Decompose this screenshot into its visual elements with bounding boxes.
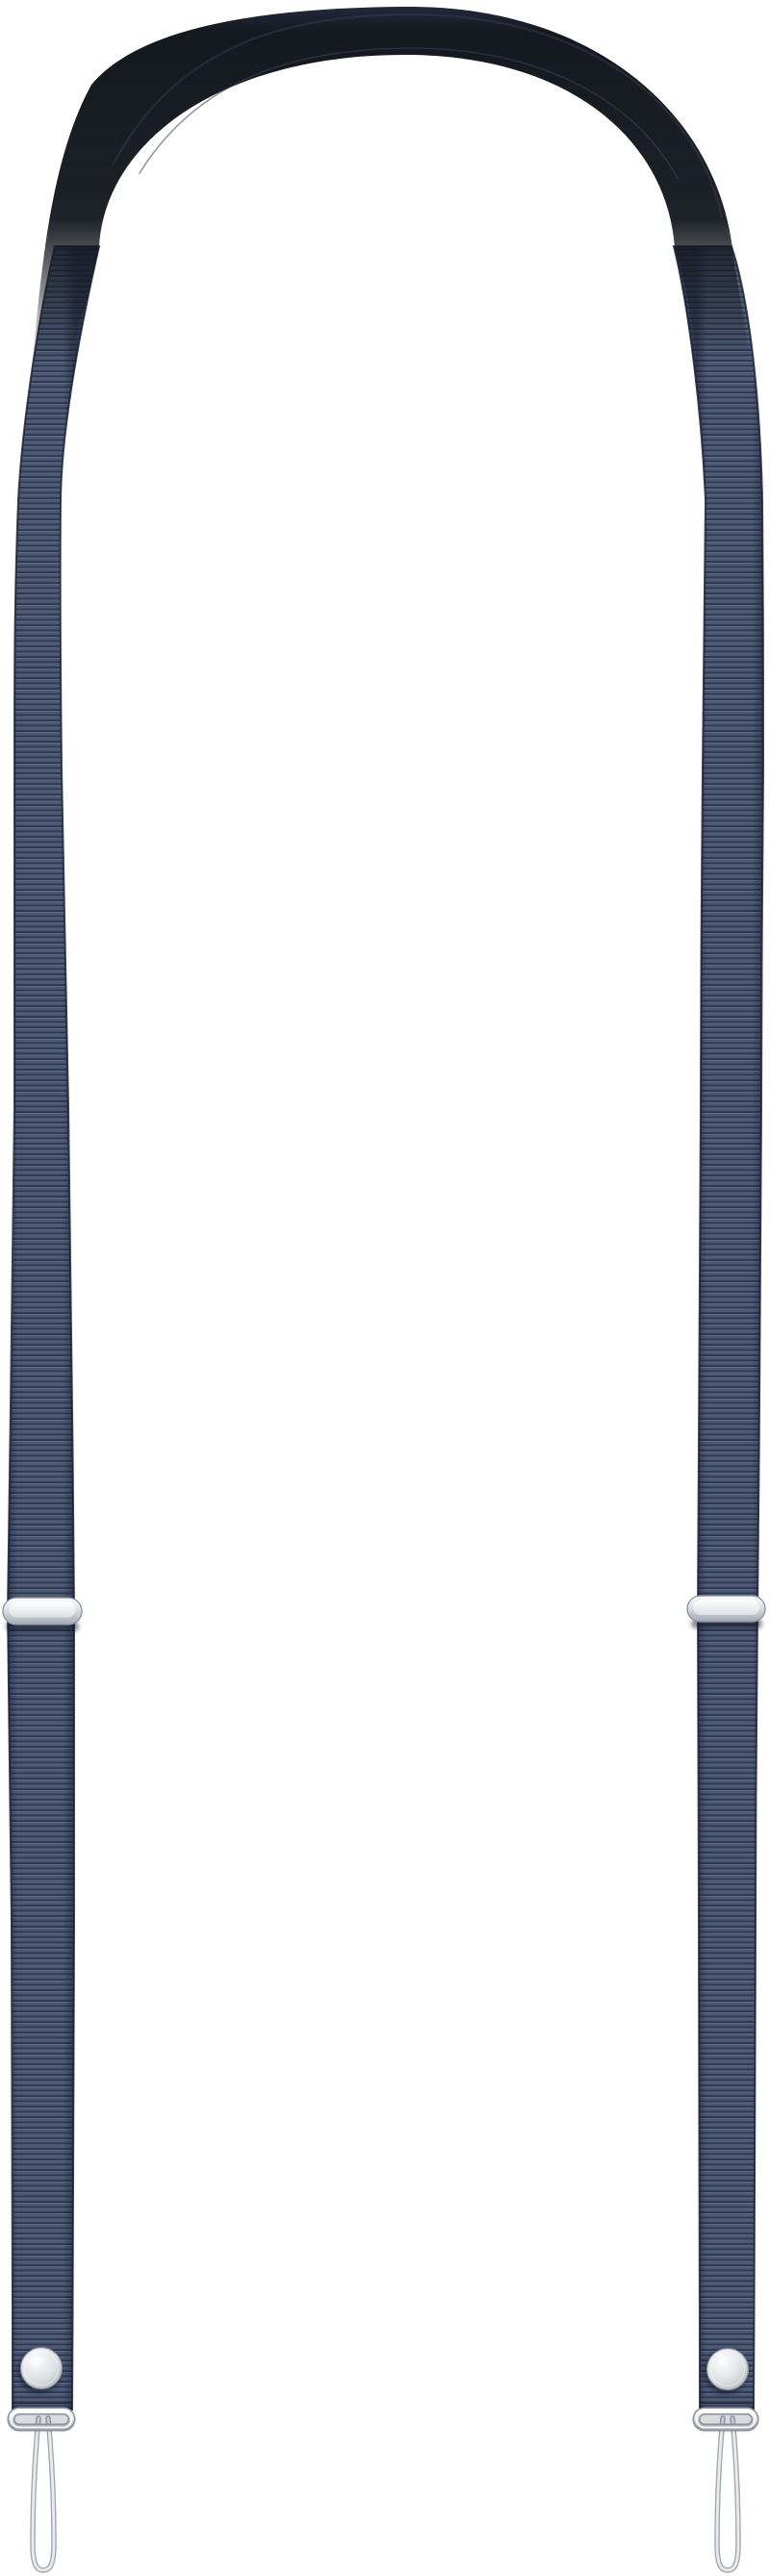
adjuster-right-face xyxy=(693,1601,759,1616)
adjuster-left-face xyxy=(10,1603,76,1618)
photo-background xyxy=(0,0,770,2576)
snap-button-right xyxy=(707,2349,749,2390)
lanyard-photo: Dark slate-blue fabric lanyard strap wit… xyxy=(0,0,770,2576)
adjuster-slider-left xyxy=(3,1598,82,1631)
adjuster-slider-right xyxy=(687,1596,765,1629)
snap-button-left xyxy=(21,2348,63,2389)
product-photo-canvas: Dark slate-blue fabric lanyard strap wit… xyxy=(0,0,770,2576)
